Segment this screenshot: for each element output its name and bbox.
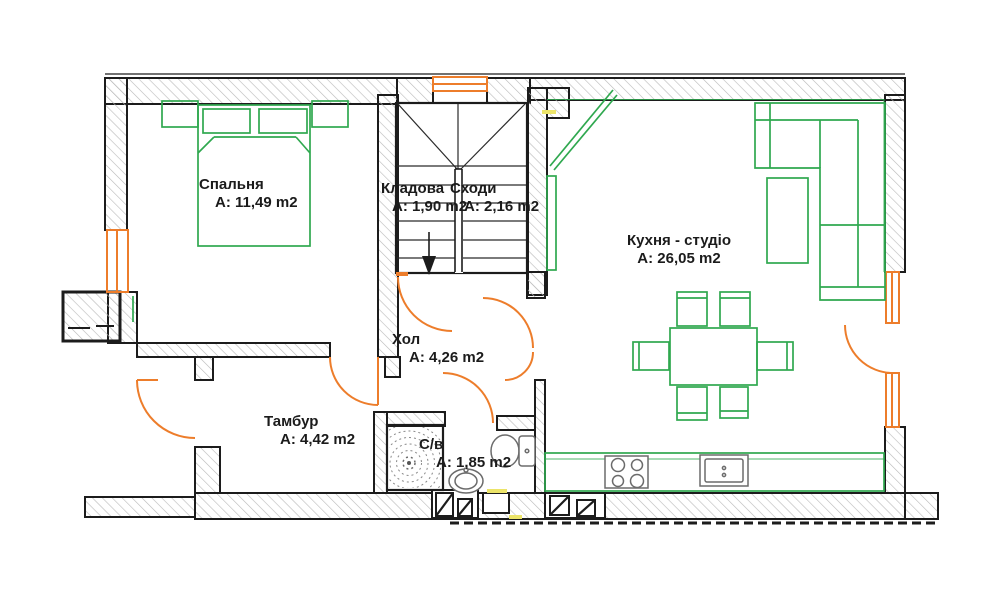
room-area: A: 11,49 m2 <box>199 194 298 212</box>
door-kitchen-terrace <box>845 325 893 373</box>
door-bathroom <box>443 373 493 423</box>
kitchen-counter <box>545 453 884 491</box>
room-area: A: 4,26 m2 <box>392 349 484 367</box>
room-area: A: 1,85 m2 <box>419 454 511 472</box>
room-label-kitchen: Кухня - студіо A: 26,05 m2 <box>615 232 743 268</box>
pillow-left <box>203 109 250 133</box>
room-area: A: 2,16 m2 <box>450 198 539 216</box>
coffee-table <box>767 178 808 263</box>
dining-set <box>633 292 793 420</box>
room-name: С/в <box>419 436 443 453</box>
chair <box>677 387 707 420</box>
window-top <box>433 77 487 91</box>
room-name: Сходи <box>450 180 497 197</box>
vent-shaft <box>63 292 120 341</box>
room-area: A: 4,42 m2 <box>264 431 355 449</box>
room-label-bedroom: Спальня A: 11,49 m2 <box>199 176 298 212</box>
door-storage <box>396 272 452 331</box>
chair <box>677 292 707 326</box>
room-label-vestibule: Тамбур A: 4,42 m2 <box>264 413 355 449</box>
dining-table <box>670 328 757 385</box>
pillow-right <box>259 109 307 133</box>
chair <box>720 387 748 418</box>
room-label-stairs: Сходи A: 2,16 m2 <box>450 180 539 216</box>
stair-door-leaf <box>547 176 556 270</box>
chair <box>720 292 750 326</box>
window-right-lower <box>886 373 899 427</box>
room-label-hall: Хол A: 4,26 m2 <box>392 331 484 367</box>
sofa-corner <box>755 103 885 300</box>
floor-plan: Спальня A: 11,49 m2 Кладова A: 1,90 m2 С… <box>0 0 998 604</box>
room-name: Кухня - студіо <box>627 232 731 249</box>
room-area: A: 26,05 m2 <box>615 250 743 268</box>
room-name: Кладова <box>381 180 444 197</box>
room-name: Спальня <box>199 176 264 193</box>
kitchen-sink <box>700 455 748 486</box>
bed-group <box>162 101 348 246</box>
room-name: Тамбур <box>264 413 318 430</box>
window-left <box>107 230 128 292</box>
door-hall-kitchen <box>483 298 533 380</box>
stove <box>605 456 648 488</box>
stairs-down-arrow <box>422 232 436 275</box>
room-name: Хол <box>392 331 420 348</box>
room-label-bathroom: С/в A: 1,85 m2 <box>419 436 511 472</box>
window-right-upper <box>886 272 899 323</box>
door-bedroom <box>330 357 378 405</box>
floor-plan-drawing <box>0 0 998 604</box>
door-vestibule-exterior <box>137 380 195 438</box>
